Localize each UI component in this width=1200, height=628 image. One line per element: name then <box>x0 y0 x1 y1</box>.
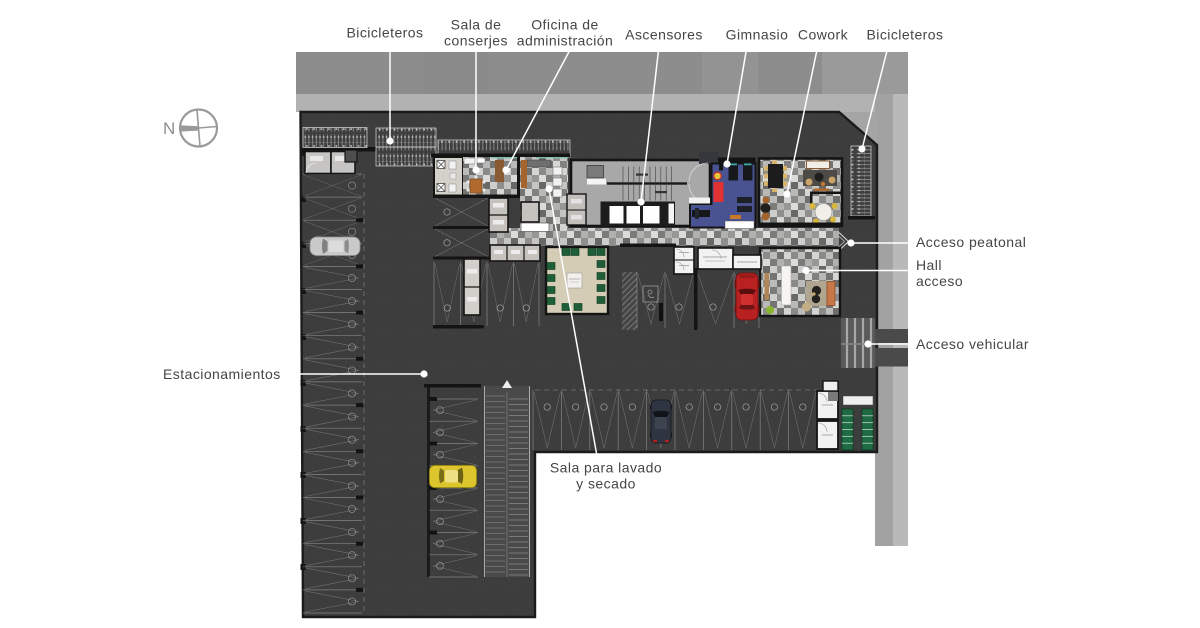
svg-text:administración: administración <box>517 33 614 49</box>
svg-text:Ascensores: Ascensores <box>625 27 703 43</box>
svg-text:Oficina de: Oficina de <box>531 17 599 33</box>
svg-text:Cowork: Cowork <box>798 27 849 43</box>
svg-text:N: N <box>163 119 176 138</box>
svg-text:conserjes: conserjes <box>444 33 508 49</box>
svg-text:Bicicleteros: Bicicleteros <box>347 25 424 41</box>
svg-text:Estacionamientos: Estacionamientos <box>163 366 281 382</box>
svg-text:Sala de: Sala de <box>451 17 502 33</box>
svg-text:Hall: Hall <box>916 257 942 273</box>
svg-text:Bicicleteros: Bicicleteros <box>867 27 944 43</box>
svg-text:Sala para lavado: Sala para lavado <box>550 460 662 476</box>
svg-text:acceso: acceso <box>916 273 963 289</box>
svg-text:Acceso peatonal: Acceso peatonal <box>916 234 1026 250</box>
svg-text:Acceso vehicular: Acceso vehicular <box>916 336 1029 352</box>
svg-text:Gimnasio: Gimnasio <box>726 27 789 43</box>
svg-text:y secado: y secado <box>576 476 636 492</box>
